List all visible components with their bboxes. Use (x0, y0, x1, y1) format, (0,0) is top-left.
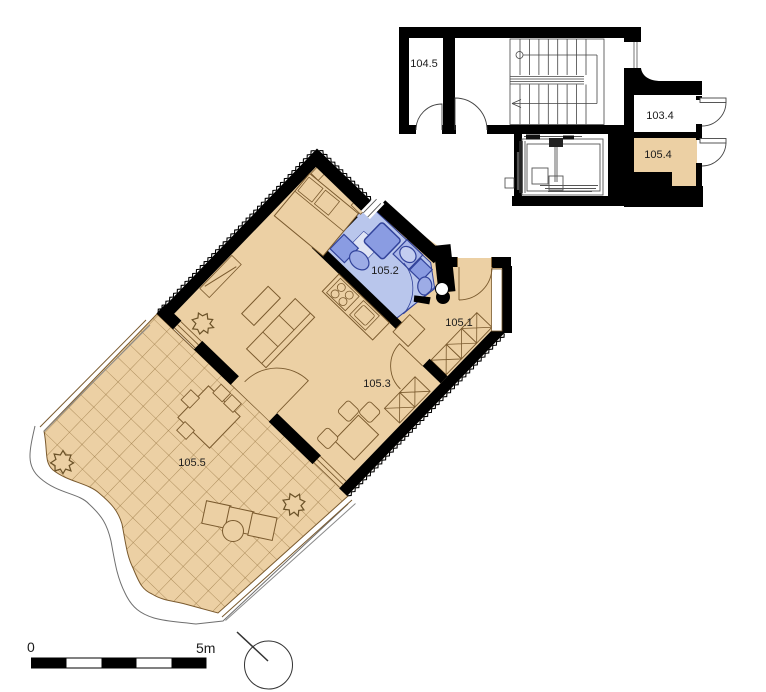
svg-text:105.3: 105.3 (363, 378, 391, 390)
svg-text:103.4: 103.4 (646, 110, 674, 122)
svg-text:105.4: 105.4 (644, 149, 672, 161)
svg-text:105.1: 105.1 (445, 317, 473, 329)
svg-text:105.2: 105.2 (371, 265, 399, 277)
svg-text:5m: 5m (196, 640, 215, 656)
svg-text:105.5: 105.5 (178, 457, 206, 469)
svg-text:104.5: 104.5 (410, 58, 438, 70)
svg-text:0: 0 (27, 639, 35, 655)
